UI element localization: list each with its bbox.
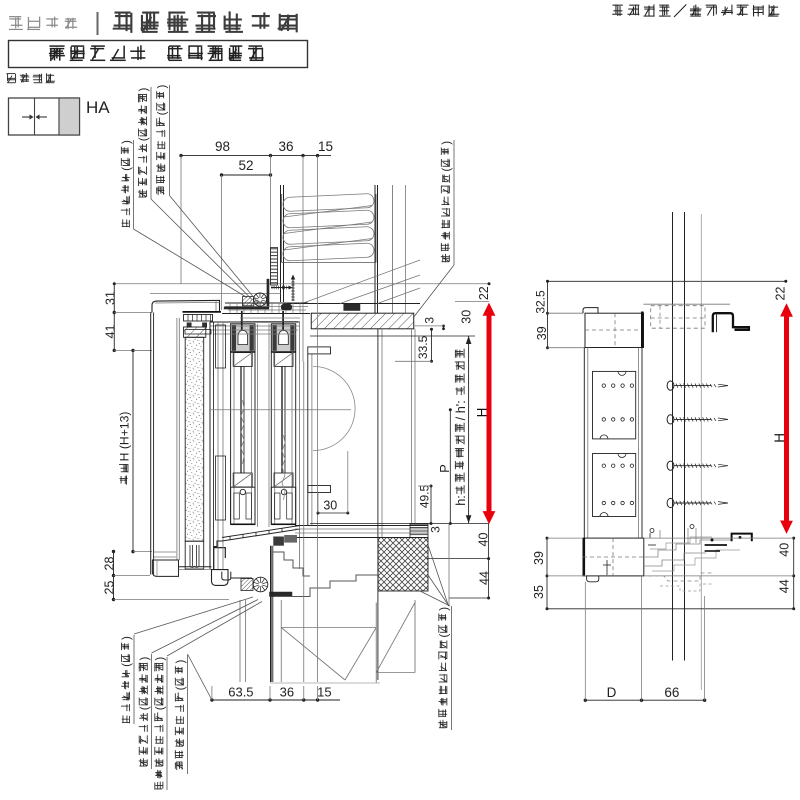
svg-text:): ) (155, 85, 168, 89)
svg-text:36: 36 (280, 685, 294, 700)
svg-text:(: ( (440, 168, 453, 172)
svg-text:(: ( (120, 167, 133, 171)
svg-text:15: 15 (317, 685, 331, 700)
svg-text:(: ( (154, 706, 167, 710)
svg-text:HA: HA (86, 98, 110, 117)
svg-text:H: H (772, 433, 787, 443)
svg-text:): ) (120, 140, 133, 144)
svg-text:15: 15 (318, 139, 333, 154)
svg-text:/ h':: / h': (453, 400, 468, 420)
svg-text:h:: h: (453, 495, 468, 506)
svg-text:(: ( (138, 706, 151, 710)
svg-text:30: 30 (323, 499, 337, 513)
svg-text:39: 39 (535, 326, 549, 340)
svg-text:): ) (138, 657, 151, 661)
svg-text:(: ( (174, 686, 187, 690)
svg-text:H: H (475, 408, 490, 418)
svg-text:35: 35 (532, 585, 546, 599)
svg-text:): ) (137, 88, 150, 92)
svg-text:): ) (438, 607, 451, 611)
svg-text:H (H+13): H (H+13) (118, 412, 132, 462)
svg-text:): ) (120, 636, 133, 640)
svg-text:44: 44 (777, 579, 791, 593)
svg-text:D: D (607, 685, 617, 700)
svg-text:(: ( (137, 137, 150, 141)
svg-text:41: 41 (103, 325, 117, 339)
svg-text:28: 28 (102, 557, 116, 571)
svg-text:(: ( (438, 634, 451, 638)
svg-text:40: 40 (777, 543, 791, 557)
svg-text:P: P (437, 464, 452, 473)
svg-text:25: 25 (102, 581, 116, 595)
svg-text:(: ( (120, 663, 133, 667)
svg-text:): ) (174, 660, 187, 664)
svg-text:63.5: 63.5 (228, 685, 253, 700)
svg-text:98: 98 (215, 139, 230, 154)
svg-text:49.5: 49.5 (417, 484, 431, 508)
svg-text:32.5: 32.5 (534, 290, 548, 314)
svg-text:22: 22 (477, 286, 491, 300)
svg-text:): ) (154, 657, 167, 661)
svg-text:44: 44 (477, 571, 491, 585)
svg-text:31: 31 (103, 291, 117, 305)
svg-text:30: 30 (460, 310, 474, 324)
svg-text:(: ( (155, 111, 168, 115)
svg-text:36: 36 (278, 139, 293, 154)
svg-text:3: 3 (423, 317, 437, 324)
svg-text:22: 22 (773, 287, 787, 301)
svg-text:39: 39 (532, 551, 546, 565)
svg-text:): ) (440, 141, 453, 145)
svg-text:66: 66 (664, 685, 679, 700)
svg-text:52: 52 (238, 158, 253, 173)
svg-text:33.5: 33.5 (416, 335, 430, 359)
svg-text:3: 3 (429, 526, 443, 533)
